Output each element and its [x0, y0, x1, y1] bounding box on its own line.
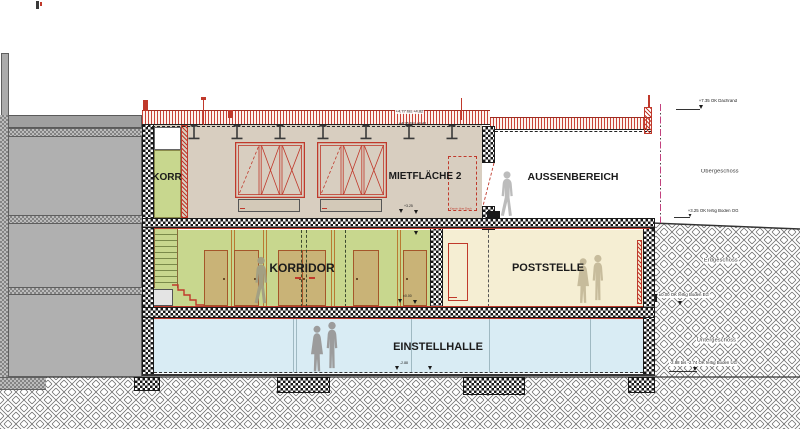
korridor-label: KORRIDOR [252, 261, 352, 275]
dachrand-leader-line [676, 109, 700, 110]
neighbor-slab-1 [0, 128, 142, 137]
poststelle-red-strip [637, 240, 642, 304]
dachrand-annotation: +7.35 OK Dachrand [698, 99, 738, 104]
neighbor-roof-slab [8, 115, 142, 128]
boden-eg-tick [654, 294, 657, 302]
neighbor-left-wall [0, 115, 9, 377]
door-1 [204, 250, 228, 306]
dachrand-marker [699, 105, 703, 109]
room-korr [154, 150, 181, 218]
neighbor-slab-3 [0, 287, 142, 295]
shaft-outline: Kamin über Dach [448, 156, 477, 211]
roof-band-main [142, 110, 490, 125]
boden-eg-marker [678, 301, 682, 305]
slab-eg-ug-redline-bottom [154, 318, 643, 319]
hall-column-line-5 [590, 319, 591, 372]
terrace-wall-upper [482, 126, 495, 163]
og-slab-marker [414, 231, 418, 235]
vestibule-door-outline [448, 243, 468, 301]
poststelle-divider [488, 230, 489, 307]
footing-1 [134, 377, 160, 391]
eg-floor-marker-a [398, 299, 402, 303]
terrace-door-swing [479, 161, 497, 209]
roof-elevation-lower: +4.36 bis +4.41 [398, 122, 427, 126]
og-floor-marker-a [399, 209, 403, 213]
ug-floor-marker-a [395, 366, 399, 370]
boden-og-leader-line [674, 217, 690, 218]
korridor-red-mark-2 [309, 277, 315, 279]
roof-dashed-line-terrace [490, 131, 652, 132]
footing-3 [463, 377, 525, 395]
level-erdgeschoss: Erdgeschoss [703, 258, 739, 264]
neighbor-footing [0, 377, 46, 390]
neighbor-parapet-wall [1, 53, 9, 117]
window-sill-2 [320, 199, 382, 212]
slab-og-eg [142, 218, 655, 228]
slab-og-eg-redline [154, 228, 650, 229]
roof-edge-post [644, 107, 652, 134]
foundation-line [142, 374, 655, 376]
korridor-stud-4 [397, 230, 401, 307]
level-untergeschoss: Untergeschoss [696, 338, 737, 344]
korr-upper-panel [154, 127, 181, 150]
og-floor-marker-b [414, 210, 418, 214]
roof-marker-4 [461, 98, 462, 120]
poststelle-label: POSTSTELLE [498, 262, 598, 274]
roof-elevation-upper: +4.77 bis +4.82 [395, 110, 424, 114]
terrace-parapet-block [487, 211, 500, 219]
roof-marker-3 [228, 110, 233, 118]
og-floor-mark-text: +3.25 [404, 204, 413, 208]
boden-ug-leader-line [669, 371, 697, 372]
vestibule-door-mark [449, 297, 457, 298]
eg-floor-marker-b [413, 300, 417, 304]
korridor-red-mark-1 [295, 277, 301, 279]
window-1 [235, 142, 305, 198]
einstellhalle-label: EINSTELLHALLE [378, 341, 498, 353]
stair-elevation [154, 228, 178, 288]
eg-floor-mark-text: ±0.00 [403, 294, 412, 298]
slab-eg-ug [142, 307, 655, 318]
neighbor-slab-2 [0, 215, 142, 224]
shaft-note: Kamin über Dach [450, 207, 472, 211]
door-4 [353, 250, 379, 306]
property-line [660, 104, 661, 223]
neighbor-building [0, 115, 142, 377]
korridor-right-wall [430, 222, 443, 307]
footing-4 [628, 377, 655, 393]
hall-column-line-2 [296, 319, 297, 372]
sill-mark-1 [240, 208, 245, 209]
persons-einstellhalle [306, 321, 344, 372]
roof-marker-1 [143, 100, 148, 111]
section-drawing: KORR +4.77 bis +4.82 +4.36 bis +4.41 [0, 0, 800, 429]
roof-marker-2 [203, 97, 204, 125]
window-sill-1 [238, 199, 300, 212]
window-2 [317, 142, 387, 198]
sill-mark-2 [322, 208, 327, 209]
level-obergeschoss: Obergeschoss [700, 169, 740, 175]
mietflaeche2-label: MIETFLÄCHE 2 [355, 171, 495, 182]
door-3-double [278, 250, 326, 306]
slab-eg-ug-redline-top [154, 306, 643, 307]
boden-og-annotation: +3.25 OK fertig Boden OG [687, 209, 739, 214]
korr-label: KORR [147, 172, 187, 183]
footing-2 [277, 377, 330, 393]
boden-ug-annotation: -2.88 bis -2.74 OK fertig Boden UG [669, 361, 738, 366]
hall-column-line-1 [293, 319, 294, 372]
ug-floor-mark-text: -2.88 [400, 361, 408, 365]
steel-beams [186, 125, 458, 141]
drawing-mark [36, 1, 39, 9]
aussenbereich-label: AUSSENBEREICH [493, 171, 653, 183]
roof-marker-5 [648, 95, 650, 108]
party-wall [142, 111, 154, 375]
ug-floor-marker-b [428, 366, 432, 370]
drawing-mark-red [40, 2, 42, 6]
boden-ug-marker [693, 367, 697, 371]
roof-marker-2-flag [201, 97, 206, 100]
roof-band-terrace [490, 117, 652, 130]
boden-eg-annotation: ±0.00 OK fertig Boden EG [658, 293, 710, 298]
